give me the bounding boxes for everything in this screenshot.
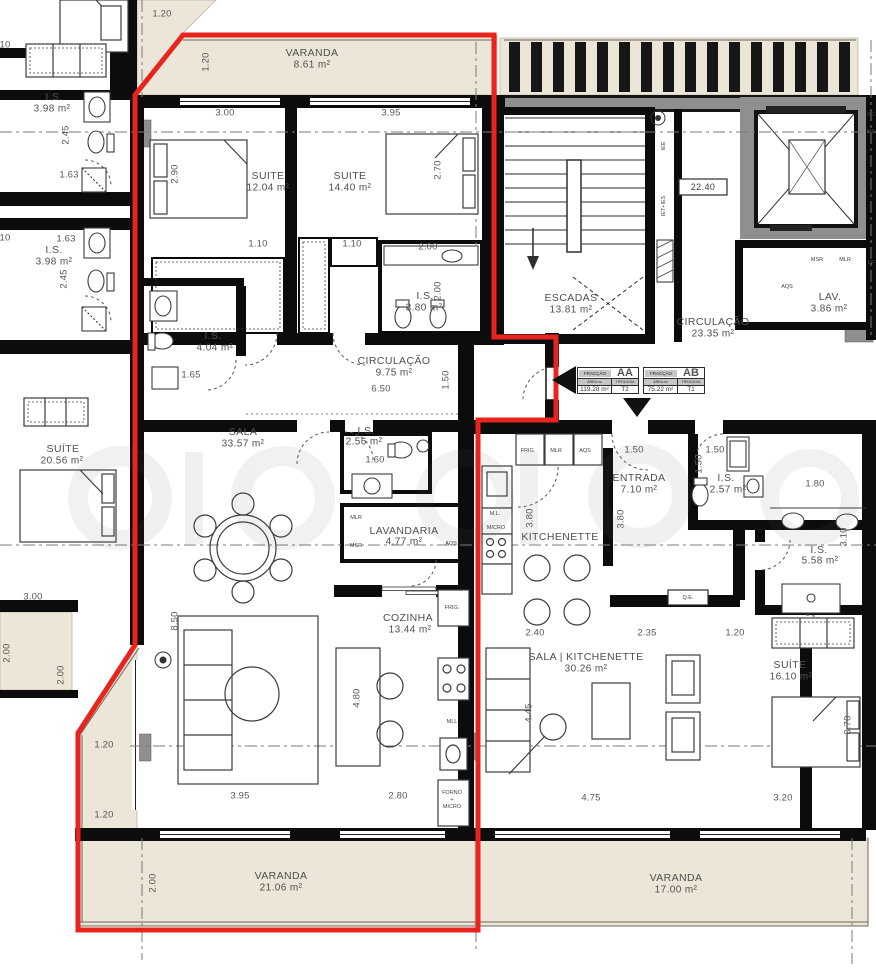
- fraction-ab-area: 75.22 m²: [644, 386, 678, 393]
- label-22-40: 22.40: [691, 182, 716, 192]
- label-msr-top: MSR: [811, 257, 823, 263]
- area-is-l2: 3.98 m²: [36, 257, 73, 268]
- label-edge-ef: EF: [867, 260, 874, 266]
- label-mlr-kit: MLR: [550, 448, 562, 454]
- area-suite-left: 20.56 m²: [41, 456, 84, 467]
- room-is-404: I.S.: [204, 330, 221, 342]
- label-aqs-top: AQS: [781, 284, 793, 290]
- area-lavandaria: 4.77 m²: [386, 537, 423, 548]
- area-is-380: 3.80 m²: [406, 303, 443, 314]
- dim-d24: 1.50: [694, 454, 705, 473]
- dim-d28: 3.10: [839, 527, 850, 546]
- area-varanda-br: 17.00 m²: [655, 885, 698, 896]
- dim-d22: 1.50: [624, 445, 643, 456]
- label-ml-kit: M.L.: [490, 511, 501, 517]
- dim-d26: 3.80: [616, 509, 627, 528]
- dim-d14: 2.45: [59, 269, 70, 288]
- label-frig-coz: FRIG.: [445, 605, 460, 611]
- dim-d02: 1.20: [201, 52, 212, 71]
- area-is-257: 2.57 m²: [710, 485, 747, 496]
- hatched-wall-strip: [504, 40, 856, 95]
- room-varanda-br: VARANDA: [650, 872, 703, 884]
- fraction-aa-code: AA: [612, 368, 638, 378]
- dim-d23: 1.50: [705, 445, 724, 456]
- area-suite2: 14.40 m²: [329, 183, 372, 194]
- area-varanda-bl: 21.06 m²: [260, 883, 303, 894]
- label-forno-coz: FORNO: [442, 790, 462, 796]
- label-iet-ies: IET+IES: [661, 196, 667, 217]
- room-lavandaria: LAVANDARIA: [370, 525, 439, 537]
- fraction-aa-header: FRACÇÃO: [579, 370, 611, 377]
- fraction-ab-header: FRACÇÃO: [645, 370, 677, 377]
- dim-d13: 1.63: [56, 234, 75, 245]
- area-circ-aa: 9.75 m²: [376, 368, 413, 379]
- label-mll: MLL: [447, 719, 458, 725]
- dim-d34: 2.35: [637, 628, 656, 639]
- dim-d10: 2.00: [433, 281, 444, 300]
- dim-d06: 2.70: [433, 160, 444, 179]
- label-edge-me: ME: [867, 129, 875, 135]
- label-mlr-top: MLR: [839, 257, 851, 263]
- room-escadas: ESCADAS: [545, 292, 598, 304]
- dim-d11: 2.45: [61, 125, 72, 144]
- dim-d35: 1.20: [725, 628, 744, 639]
- elevator: [756, 106, 856, 231]
- dim-d18: 3.00: [23, 592, 42, 603]
- dim-d09: 2.00: [418, 242, 437, 253]
- dim-d36: 4.45: [524, 703, 535, 722]
- area-lav: 3.86 m²: [811, 304, 848, 315]
- room-kitchenette: KITCHENETTE: [521, 531, 598, 543]
- label-plus-coz: +: [450, 797, 453, 803]
- room-entrada: ENTRADA: [613, 472, 666, 484]
- fraction-table-ab: FRACÇÃO AB ÁREA m² TIPOLOGIA 75.22 m² T1: [643, 367, 705, 394]
- fraction-ab-type-label: TIPOLOGIA: [678, 379, 704, 385]
- label-micro-kit: MICRO: [487, 525, 505, 531]
- dim-d43: 2.00: [56, 665, 67, 684]
- dim-d25: 3.80: [525, 508, 536, 527]
- room-cozinha: COZINHA: [383, 612, 433, 624]
- room-suite1: SUITE: [252, 170, 285, 182]
- dim-d41: 1.20: [94, 740, 113, 751]
- dim-d33: 2.40: [525, 628, 544, 639]
- area-suite1: 12.04 m²: [247, 183, 290, 194]
- fraction-ab-code: AB: [678, 368, 704, 378]
- dim-d27: 1.80: [805, 479, 824, 490]
- area-is-558: 5.58 m²: [802, 556, 839, 567]
- area-cozinha: 13.44 m²: [389, 625, 432, 636]
- dim-d07: 1.10: [248, 239, 267, 250]
- dim-d37: 4.75: [581, 793, 600, 804]
- fraction-ab-area-label: ÁREA m²: [644, 379, 678, 385]
- area-entrada: 7.10 m²: [621, 485, 658, 496]
- room-is-l1: I.S.: [45, 91, 62, 103]
- room-circ-aa: CIRCULAÇÃO: [358, 355, 431, 367]
- dim-d31: 2.80: [388, 791, 407, 802]
- label-micro-coz: MICRO: [443, 804, 461, 810]
- label-aqs-lav: AQS: [445, 541, 457, 547]
- room-sala-kit: SALA | KITCHENETTE: [529, 651, 644, 663]
- dim-d16: 6.50: [371, 384, 390, 395]
- dim-d15: 1.65: [181, 370, 200, 381]
- label-iee: IEE: [661, 142, 667, 151]
- label-edge-fd: FD: [867, 112, 874, 118]
- room-lav: LAV.: [819, 291, 842, 303]
- room-is-257: I.S.: [717, 472, 734, 484]
- dim-d12: 1.63: [59, 170, 78, 181]
- room-is-558: I.S.: [810, 544, 827, 556]
- dim-d21: 10: [0, 233, 10, 244]
- dim-d17: 1.50: [441, 370, 452, 389]
- label-mlr-lav: MLR: [350, 515, 362, 521]
- dim-d30: 4.80: [352, 688, 363, 707]
- room-suite2: SUITE: [334, 170, 367, 182]
- area-is-404: 4.04 m²: [197, 343, 234, 354]
- label-qe: Q.E.: [682, 595, 693, 601]
- room-varanda-top: VARANDA: [286, 47, 339, 59]
- room-circ-common: CIRCULAÇÃO: [677, 316, 750, 328]
- floor-plan: VARANDA 8.61 m² SUITE 12.04 m² SUITE 14.…: [0, 0, 876, 971]
- dim-d42: 1.20: [94, 810, 113, 821]
- fraction-table-aa: FRACÇÃO AA ÁREA m² TIPOLOGIA 119.28 m² T…: [577, 367, 639, 394]
- dim-d20: 10: [0, 40, 10, 51]
- room-suite-ab: SUÍTE: [774, 659, 807, 671]
- room-suite-left: SUÍTE: [47, 443, 80, 455]
- room-is-380: I.S.: [416, 290, 433, 302]
- dim-d38: 3.20: [773, 793, 792, 804]
- dim-d19: 8.50: [170, 611, 181, 630]
- dim-d04: 3.95: [381, 108, 400, 119]
- dim-d32: 3.95: [230, 791, 249, 802]
- room-sala: SALA: [229, 426, 257, 438]
- area-sala: 33.57 m²: [222, 439, 265, 450]
- label-aqs-kit: AQS: [579, 448, 591, 454]
- room-is-256: I.S.: [357, 425, 374, 437]
- dim-d44: 2.00: [2, 643, 13, 662]
- fraction-aa-type-label: TIPOLOGIA: [612, 379, 638, 385]
- fraction-aa-area: 119.28 m²: [578, 386, 612, 393]
- fraction-aa-area-label: ÁREA m²: [578, 379, 612, 385]
- area-suite-ab: 16.10 m²: [770, 672, 813, 683]
- dim-d05: 2.90: [170, 164, 181, 183]
- label-frig-kit: FRIG.: [521, 448, 536, 454]
- area-is-l1: 3.98 m²: [34, 104, 71, 115]
- area-escadas: 13.81 m²: [550, 305, 593, 316]
- label-msr-lav: MSR: [350, 543, 362, 549]
- dim-d03: 3.00: [215, 108, 234, 119]
- area-varanda-top: 8.61 m²: [294, 60, 331, 71]
- dim-d40: 2.00: [148, 873, 159, 892]
- fraction-ab-type: T1: [678, 386, 704, 393]
- area-circ-common: 23.35 m²: [692, 329, 735, 340]
- room-is-l2: I.S.: [45, 244, 62, 256]
- dim-d01: 1.20: [152, 9, 171, 20]
- dim-d39: 3.70: [843, 715, 854, 734]
- dim-d29: 1.60: [365, 455, 384, 466]
- area-is-256: 2.56 m²: [346, 437, 383, 448]
- fraction-aa-type: T2: [612, 386, 638, 393]
- room-varanda-bl: VARANDA: [255, 870, 308, 882]
- dim-d08: 1.10: [342, 239, 361, 250]
- area-sala-kit: 30.26 m²: [565, 664, 608, 675]
